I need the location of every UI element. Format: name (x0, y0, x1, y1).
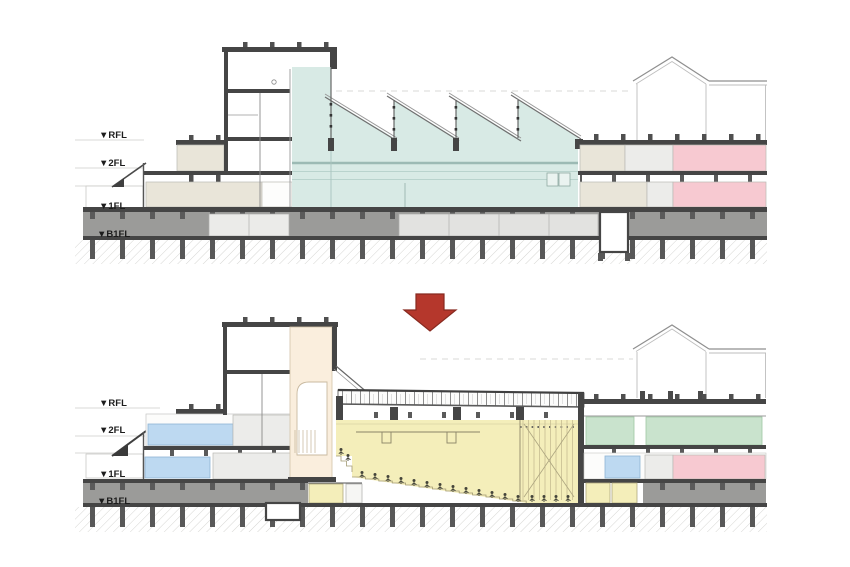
room-2f-blue (148, 424, 233, 445)
architectural-section-diagram: ▼RFL ▼2FL ▼1FL ▼B1FL (0, 0, 850, 567)
section-before: ▼RFL ▼2FL ▼1FL ▼B1FL (75, 42, 767, 264)
orchestra-pit (266, 503, 300, 520)
level-label-b1fl: ▼B1FL (97, 229, 130, 240)
room-1f-blue (605, 456, 640, 478)
section-after: ▼RFL ▼2FL ▼1FL ▼B1FL (75, 317, 767, 532)
level-label-2fl: ▼2FL (99, 158, 125, 169)
room-2f-green (586, 417, 634, 445)
level-label-rfl: ▼RFL (99, 130, 127, 141)
room-2f-green (646, 417, 762, 445)
level-label-2fl: ▼2FL (99, 425, 125, 436)
right-wing (584, 325, 766, 479)
room-1f-blue (145, 457, 210, 478)
arch-opening (297, 382, 327, 455)
existing-hall (292, 67, 583, 208)
basement-shaft (600, 212, 628, 252)
right-wing (578, 57, 767, 207)
level-label-1fl: ▼1FL (99, 469, 125, 480)
level-label-1fl: ▼1FL (99, 201, 125, 212)
gable-roof-outline (633, 325, 766, 399)
level-label-rfl: ▼RFL (99, 398, 127, 409)
level-label-b1fl: ▼B1FL (97, 496, 130, 507)
auditorium-new (309, 390, 584, 503)
left-wing (143, 135, 292, 207)
left-wing (143, 404, 292, 479)
transform-arrow-icon (404, 294, 456, 331)
room-1f-pink (673, 455, 765, 479)
hall-volume (292, 67, 578, 208)
section-drawing: ▼RFL ▼2FL ▼1FL ▼B1FL (0, 0, 850, 567)
basement (75, 207, 767, 264)
gable-roof-outline (633, 57, 767, 140)
